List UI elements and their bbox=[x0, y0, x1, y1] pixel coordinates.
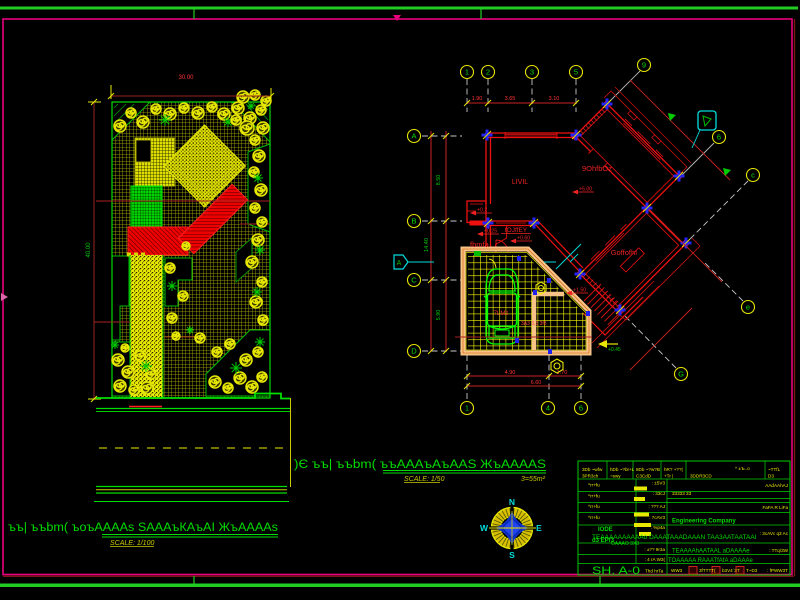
svg-text:OAAAO 3X3: OAAAO 3X3 bbox=[611, 541, 639, 547]
svg-text:W: W bbox=[480, 523, 489, 533]
svg-text:4: 4 bbox=[546, 404, 550, 413]
svg-text:5.90: 5.90 bbox=[436, 310, 442, 321]
svg-text:8Db ~?w?B: 8Db ~?w?B bbox=[636, 467, 660, 472]
svg-text:: ±?? 9r3a: : ±?? 9r3a bbox=[644, 547, 665, 552]
svg-text:^rr+fu: ^rr+fu bbox=[588, 504, 600, 509]
svg-text:6.60: 6.60 bbox=[531, 380, 542, 386]
svg-text:ъъ| ъъbm( ъoъAAAAѕ ЅAAAъКAъAI: ъъ| ъъbm( ъoъAAAAѕ ЅAAAъКAъAI ЖъAAAAѕ bbox=[8, 522, 278, 534]
svg-text:^ ±Ъ..o: ^ ±Ъ..o bbox=[735, 466, 750, 471]
svg-text:G: G bbox=[678, 370, 684, 379]
svg-text:A: A bbox=[411, 132, 416, 141]
svg-text:: ??? AJ: : ??? AJ bbox=[648, 504, 665, 509]
svg-text:9OhfbOz: 9OhfbOz bbox=[582, 164, 612, 173]
svg-text:Engineering Company: Engineering Company bbox=[672, 519, 736, 525]
svg-text:1: 1 bbox=[465, 404, 469, 413]
svg-text:E: E bbox=[536, 523, 542, 533]
svg-text:3DDR3CD: 3DDR3CD bbox=[690, 474, 712, 479]
svg-text:SCALE: 1/50: SCALE: 1/50 bbox=[404, 476, 445, 483]
svg-text:IODE: IODE bbox=[598, 527, 613, 533]
svg-text:N: N bbox=[509, 497, 515, 507]
svg-text:14.40: 14.40 bbox=[424, 238, 430, 252]
svg-text:: TTq/3W: : TTq/3W bbox=[769, 548, 788, 553]
svg-text:7LMz: 7LMz bbox=[494, 311, 509, 317]
svg-text:: %p4a: : %p4a bbox=[651, 525, 666, 530]
svg-text:+5.00: +5.00 bbox=[579, 187, 592, 193]
svg-text:5: 5 bbox=[574, 68, 578, 77]
svg-text:A: A bbox=[397, 260, 402, 267]
svg-text:3.65: 3.65 bbox=[505, 96, 516, 102]
svg-text:33333 33: 33333 33 bbox=[672, 491, 692, 496]
svg-text:b3V4´3T: b3V4´3T bbox=[722, 568, 740, 573]
svg-text:40.00: 40.00 bbox=[86, 242, 92, 258]
svg-text:hR? +??|: hR? +??| bbox=[664, 467, 683, 472]
svg-text:3fTTTT(: 3fTTTT( bbox=[699, 568, 716, 573]
svg-text:hDb ~?br+L: hDb ~?br+L bbox=[610, 467, 635, 472]
svg-text:~TTfL: ~TTfL bbox=[768, 467, 781, 472]
svg-text:c: c bbox=[751, 171, 755, 180]
svg-text:: 33cJ: : 33cJ bbox=[653, 491, 665, 496]
svg-text:C3CdD: C3CdD bbox=[636, 474, 652, 479]
svg-text:8.50: 8.50 bbox=[436, 175, 442, 186]
svg-text:6: 6 bbox=[717, 133, 721, 142]
svg-text:TEAAAAhAATAAL aDAAAAe: TEAAAAhAATAAL aDAAAAe bbox=[672, 549, 750, 555]
svg-text:3PR3ch: 3PR3ch bbox=[582, 474, 599, 479]
svg-text:1: 1 bbox=[465, 68, 469, 77]
svg-text:+0.25: +0.25 bbox=[484, 229, 497, 235]
svg-text:3: 3 bbox=[530, 68, 534, 77]
svg-text:Thd hrTa: Thd hrTa bbox=[645, 569, 664, 574]
svg-text:fOJffEY: fOJffEY bbox=[505, 227, 528, 234]
svg-text:TOAAAAA RAAATfAfA aDAAAe: TOAAAAA RAAATfAfA aDAAAe bbox=[668, 558, 753, 564]
svg-text:4.90: 4.90 bbox=[505, 370, 516, 376]
svg-text:6: 6 bbox=[579, 404, 583, 413]
svg-text:AAdAAhAJ: AAdAAhAJ bbox=[765, 483, 788, 488]
svg-text:T~D3: T~D3 bbox=[746, 568, 758, 573]
svg-text:D: D bbox=[411, 347, 417, 356]
svg-text:SCALE: 1/100: SCALE: 1/100 bbox=[110, 540, 154, 547]
svg-text:D3: D3 bbox=[768, 474, 774, 479]
svg-text:3.10: 3.10 bbox=[549, 96, 560, 102]
svg-text:+0.60: +0.60 bbox=[517, 236, 530, 242]
svg-text:: fPWW3T: : fPWW3T bbox=[767, 568, 788, 573]
svg-text:^rr+fu: ^rr+fu bbox=[588, 515, 600, 520]
svg-text:FaFA R LiFa: FaFA R LiFa bbox=[762, 505, 788, 510]
svg-text:WW3: WW3 bbox=[671, 568, 683, 573]
svg-text:B: B bbox=[411, 217, 416, 226]
svg-text:3Db ~wfw: 3Db ~wfw bbox=[582, 467, 603, 472]
svg-text:3A3 3,3 3f3: 3A3 3,3 3f3 bbox=[521, 321, 547, 327]
svg-text:2: 2 bbox=[486, 68, 490, 77]
svg-text:: 3cAVc q3 Ac: : 3cAVc q3 Ac bbox=[760, 531, 789, 536]
svg-text:TEAAAAAAAAAAo DAAATAAADAAAN TA: TEAAAAAAAAAAo DAAATAAADAAAN TAA3AATAATAA… bbox=[592, 534, 757, 541]
svg-text:+0.45: +0.45 bbox=[608, 347, 621, 353]
svg-text:1.90: 1.90 bbox=[472, 96, 483, 102]
svg-text:LIVIL: LIVIL bbox=[512, 179, 528, 186]
svg-text:GoffofhI: GoffofhI bbox=[611, 248, 638, 257]
svg-text:1.70: 1.70 bbox=[557, 370, 568, 376]
svg-text:+Tr |: +Tr | bbox=[664, 474, 673, 479]
svg-text:C: C bbox=[411, 276, 417, 285]
svg-text:e: e bbox=[746, 303, 750, 312]
svg-text:9: 9 bbox=[642, 61, 646, 70]
svg-text:: ±5V3: : ±5V3 bbox=[652, 481, 666, 486]
svg-text:)Є ъъ| ъъbm( ъъAAAъAъAAЅ ЖъAAA: )Є ъъ| ъъbm( ъъAAAъAъAAЅ ЖъAAAAЅ bbox=[294, 459, 546, 471]
svg-text:+1.50: +1.50 bbox=[573, 288, 586, 294]
svg-text:: 7cAV3: : 7cAV3 bbox=[649, 515, 665, 520]
svg-text:30.00: 30.00 bbox=[178, 75, 194, 81]
svg-text:fbmfa: fbmfa bbox=[470, 240, 490, 249]
svg-text:^rr+fu: ^rr+fu bbox=[588, 494, 600, 499]
svg-text:^rr+fu: ^rr+fu bbox=[588, 483, 600, 488]
svg-text:3=55m²: 3=55m² bbox=[521, 476, 546, 483]
svg-text:~swy: ~swy bbox=[610, 474, 621, 479]
svg-text:SH. A-0: SH. A-0 bbox=[592, 565, 640, 577]
svg-text:+0.2: +0.2 bbox=[477, 208, 487, 214]
svg-text:S: S bbox=[509, 550, 515, 560]
svg-text:: 4 rA W3(: : 4 rA W3( bbox=[645, 557, 666, 562]
